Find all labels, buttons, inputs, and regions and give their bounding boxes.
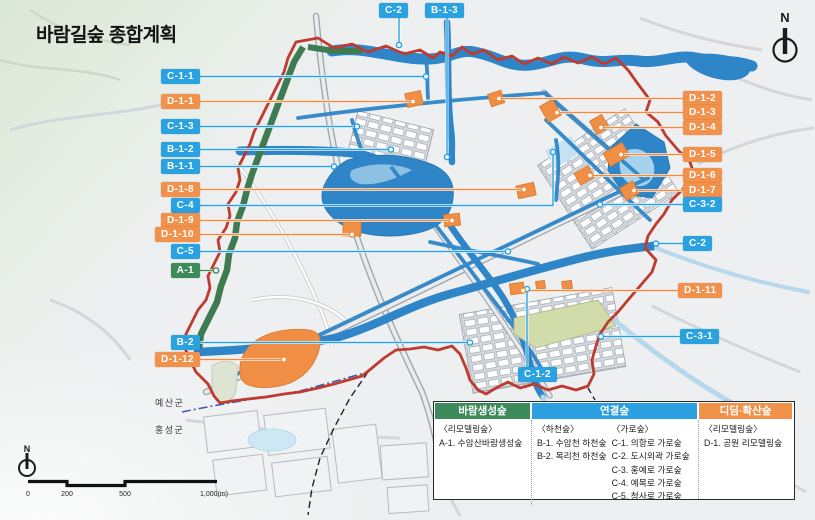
legend-subtitle: 〈하천숲〉 [537, 423, 607, 436]
map-tag-C-3-2: C-3-2 [683, 197, 722, 212]
north-needle-icon [783, 28, 787, 54]
legend-subtitle: 〈리모델링숲〉 [439, 423, 526, 436]
map-tag-B-1-3: B-1-3 [425, 3, 464, 18]
legend-item: C-1. 의항로 가로숲 [612, 437, 690, 450]
legend-item: C-4. 예목로 가로숲 [612, 477, 690, 490]
map-tag-C-5: C-5 [171, 244, 200, 259]
map-tag-C-3-1: C-3-1 [680, 329, 719, 344]
legend-header-stepping: 디딤·확산숲 [699, 403, 792, 419]
region-label-hongseong: 홍성군 [155, 424, 184, 436]
wind-path-forest-plan: 예산군 홍성군 [0, 0, 815, 520]
legend-header-connecting: 연결숲 [532, 403, 697, 419]
map-tag-D-1-12: D-1-12 [155, 352, 200, 367]
map-tag-C-4: C-4 [171, 198, 200, 213]
map-tag-D-1-4: D-1-4 [683, 120, 722, 135]
legend-column-wind-generation: 바람생성숲 〈리모델링숲〉 A-1. 수암산바람생성숲 [434, 402, 531, 499]
map-tag-D-1-8: D-1-8 [161, 182, 200, 197]
legend-item: B-2. 목리천 하천숲 [537, 450, 607, 463]
legend-item: B-1. 수암천 하천숲 [537, 437, 607, 450]
legend-subtitle: 〈리모델링숲〉 [704, 423, 788, 436]
legend-body: 〈하천숲〉 B-1. 수암천 하천숲 B-2. 목리천 하천숲 〈가로숲〉 C-… [531, 420, 698, 506]
region-label-yesan: 예산군 [155, 398, 184, 409]
map-tag-D-1-10: D-1-10 [155, 227, 200, 242]
map-tag-B-1-2: B-1-2 [161, 142, 200, 157]
north-label: N [24, 444, 31, 454]
legend-item: C-2. 도시외곽 가로숲 [612, 450, 690, 463]
legend-group-street: 〈가로숲〉 C-1. 의항로 가로숲 C-2. 도시외곽 가로숲 C-3. 홍예… [612, 423, 690, 503]
legend-item: C-3. 홍예로 가로숲 [612, 464, 690, 477]
legend-item: C-5. 청사로 가로숲 [612, 490, 690, 503]
scale-tick: 500 [119, 491, 131, 498]
legend-column-connecting: 연결숲 〈하천숲〉 B-1. 수암천 하천숲 B-2. 목리천 하천숲 〈가로숲… [531, 402, 698, 499]
legend-group-river: 〈하천숲〉 B-1. 수암천 하천숲 B-2. 목리천 하천숲 [537, 423, 607, 503]
legend-column-stepping: 디딤·확산숲 〈리모델링숲〉 D-1. 공원 리모델링숲 [698, 402, 793, 499]
map-tag-D-1-7: D-1-7 [683, 183, 722, 198]
map-tag-C-2-top: C-2 [379, 3, 408, 18]
map-tag-C-1-2: C-1-2 [518, 367, 557, 382]
map-tag-D-1-5: D-1-5 [683, 147, 722, 162]
map-tag-C-1-1: C-1-1 [161, 69, 200, 84]
legend-header-wind-generation: 바람생성숲 [435, 403, 530, 419]
map-tag-D-1-2: D-1-2 [683, 91, 722, 106]
legend-body: 〈리모델링숲〉 A-1. 수암산바람생성숲 [434, 420, 531, 499]
scale-tick: 1,000(m) [200, 491, 228, 498]
legend-item: A-1. 수암산바람생성숲 [439, 437, 526, 450]
map-tag-B-2: B-2 [171, 335, 200, 350]
north-label: N [780, 10, 789, 25]
legend-body: 〈리모델링숲〉 D-1. 공원 리모델링숲 [698, 420, 793, 499]
map-tag-D-1-9: D-1-9 [161, 213, 200, 228]
map-tag-D-1-6: D-1-6 [683, 168, 722, 183]
map-tag-D-1-11: D-1-11 [678, 283, 722, 298]
scale-tick: 0 [26, 491, 30, 498]
scale-tick: 200 [61, 491, 73, 498]
map-tag-D-1-1: D-1-1 [161, 94, 200, 109]
map-tag-D-1-3: D-1-3 [683, 105, 722, 120]
map-tag-C-2-right: C-2 [683, 236, 712, 251]
legend-subtitle: 〈가로숲〉 [612, 423, 690, 436]
north-needle-icon [26, 453, 29, 469]
page-title: 바람길숲 종합계획 [36, 20, 177, 47]
legend-table: 바람생성숲 〈리모델링숲〉 A-1. 수암산바람생성숲 연결숲 〈하천숲〉 B-… [433, 401, 795, 500]
legend-item: D-1. 공원 리모델링숲 [704, 437, 788, 450]
map-tag-C-1-3: C-1-3 [161, 119, 200, 134]
map-tag-B-1-1: B-1-1 [161, 159, 200, 174]
map-tag-A-1: A-1 [171, 263, 200, 278]
